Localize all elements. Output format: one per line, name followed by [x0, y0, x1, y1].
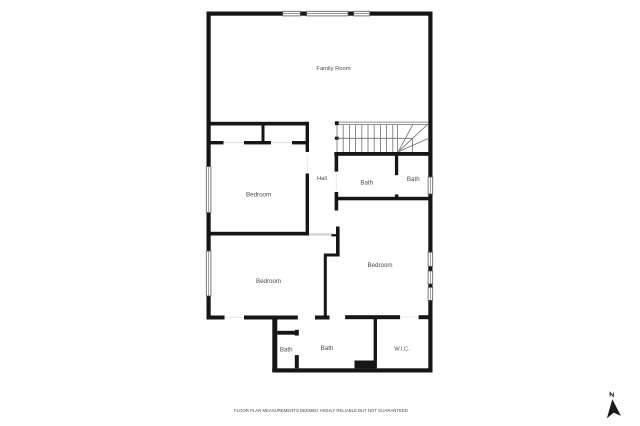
svg-text:Family Room: Family Room	[316, 66, 350, 72]
svg-text:Bath: Bath	[321, 345, 334, 352]
svg-text:Hall: Hall	[317, 176, 327, 182]
svg-text:Bedroom: Bedroom	[256, 278, 281, 285]
svg-text:W.I.C.: W.I.C.	[394, 346, 410, 352]
svg-text:FLOOR PLAN MEASUREMENTS DEEMED: FLOOR PLAN MEASUREMENTS DEEMED HIGHLY RE…	[234, 408, 408, 413]
svg-text:Bath: Bath	[360, 180, 373, 187]
svg-text:Bath: Bath	[407, 176, 420, 183]
svg-text:Bedroom: Bedroom	[246, 192, 271, 199]
svg-text:Bath: Bath	[280, 347, 293, 354]
svg-text:Bedroom: Bedroom	[367, 262, 392, 269]
